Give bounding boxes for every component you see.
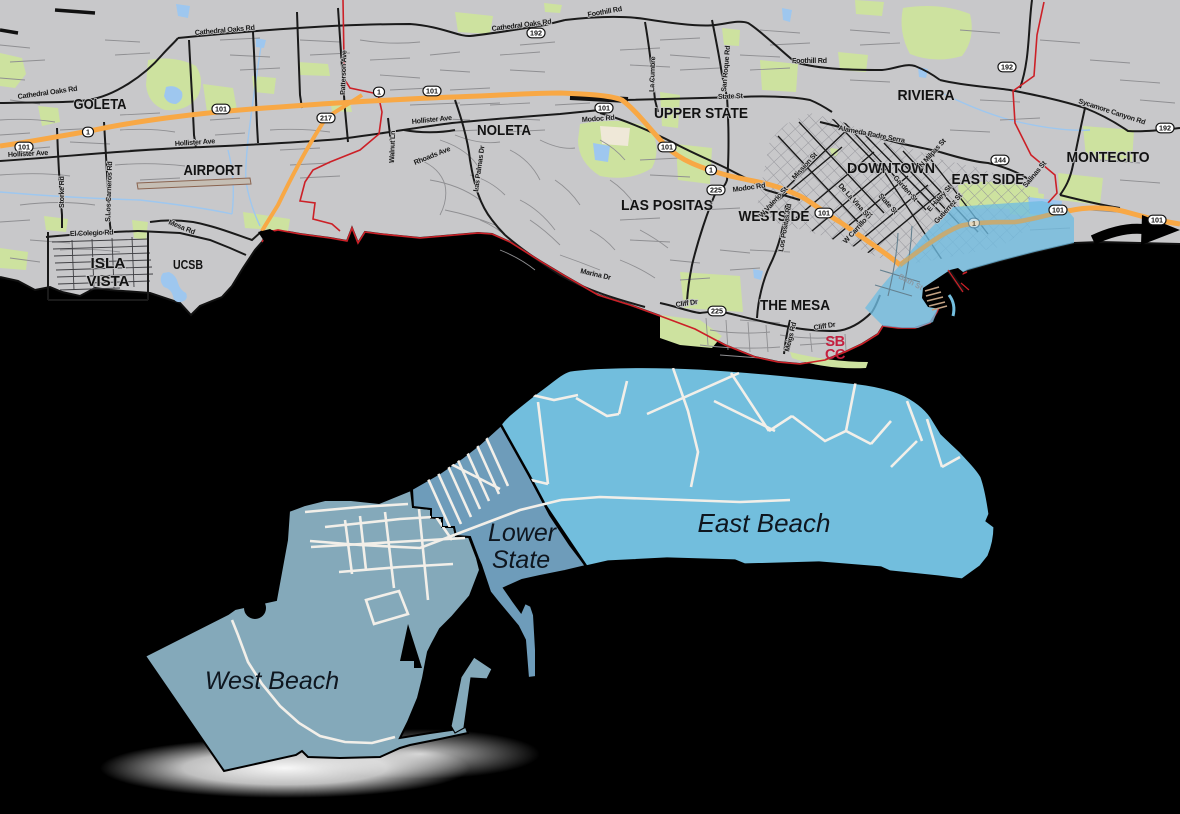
svg-text:LAS POSITAS: LAS POSITAS	[621, 197, 713, 214]
svg-text:WESTSIDE: WESTSIDE	[739, 208, 810, 225]
svg-text:101: 101	[661, 143, 673, 152]
svg-text:225: 225	[711, 307, 723, 316]
svg-text:101: 101	[215, 105, 227, 114]
svg-text:GOLETA: GOLETA	[74, 96, 127, 113]
svg-text:West Beach: West Beach	[205, 667, 339, 695]
svg-text:144: 144	[994, 156, 1006, 165]
svg-text:Foothill Rd: Foothill Rd	[792, 56, 827, 65]
svg-text:1: 1	[709, 166, 713, 175]
svg-text:EAST SIDE: EAST SIDE	[952, 171, 1025, 188]
svg-text:192: 192	[1159, 124, 1171, 133]
svg-text:RIVIERA: RIVIERA	[898, 87, 955, 104]
svg-text:Lower: Lower	[488, 519, 558, 547]
svg-text:101: 101	[818, 209, 830, 218]
svg-text:192: 192	[1001, 63, 1013, 72]
svg-text:1: 1	[86, 128, 90, 137]
svg-text:VISTA: VISTA	[87, 273, 130, 290]
svg-text:UCSB: UCSB	[173, 257, 203, 272]
svg-text:State St: State St	[718, 91, 744, 101]
svg-text:1: 1	[377, 88, 381, 97]
svg-text:225: 225	[710, 186, 722, 195]
svg-text:101: 101	[426, 87, 438, 96]
svg-text:192: 192	[530, 29, 542, 38]
svg-text:101: 101	[1151, 216, 1163, 225]
svg-text:101: 101	[598, 104, 610, 113]
svg-text:217: 217	[320, 114, 332, 123]
svg-text:El Colegio Rd: El Colegio Rd	[70, 227, 114, 238]
svg-text:UPPER STATE: UPPER STATE	[654, 105, 748, 122]
svg-text:Patterson Ave: Patterson Ave	[338, 50, 349, 95]
svg-text:East Beach: East Beach	[698, 508, 831, 538]
svg-text:Walnut Ln: Walnut Ln	[387, 131, 397, 164]
svg-text:1: 1	[972, 219, 976, 228]
svg-text:THE MESA: THE MESA	[760, 297, 830, 314]
svg-text:State: State	[492, 546, 550, 574]
svg-text:MONTECITO: MONTECITO	[1067, 149, 1150, 166]
svg-text:Storke Rd: Storke Rd	[57, 176, 66, 208]
svg-text:ISLA: ISLA	[91, 255, 126, 272]
svg-text:CC: CC	[825, 347, 846, 363]
svg-text:NOLETA: NOLETA	[477, 122, 531, 139]
svg-text:La Cumbre: La Cumbre	[647, 56, 657, 92]
svg-text:AIRPORT: AIRPORT	[184, 162, 243, 179]
svg-text:101: 101	[1052, 206, 1064, 215]
